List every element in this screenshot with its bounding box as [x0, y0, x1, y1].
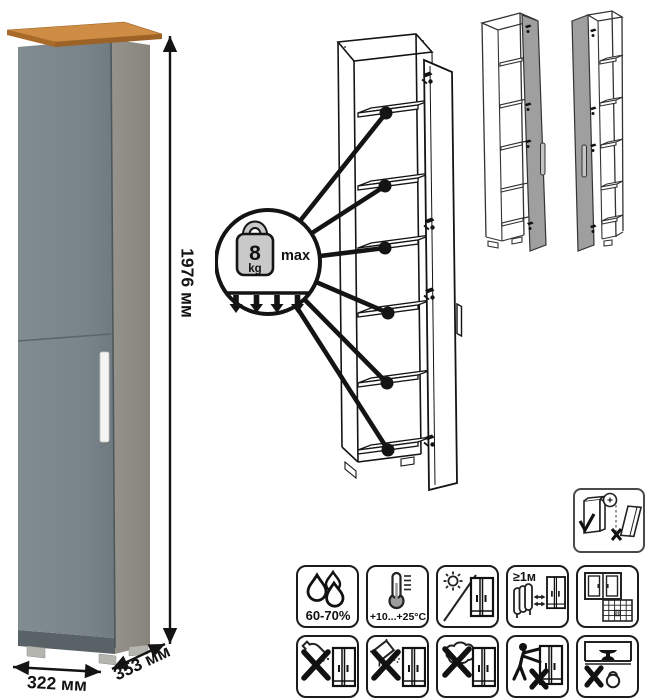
anvil-icon: [599, 650, 617, 660]
heat-distance-icon: ≥1м: [510, 569, 566, 625]
wall-anchor-drawing: [576, 491, 642, 550]
load-value: 8: [249, 242, 261, 265]
calendar-day-label: 21: [614, 610, 620, 615]
humidity-icon: 60-70%: [300, 569, 356, 625]
load-qualifier: max: [281, 248, 310, 264]
care-icon-temperature: +10...+25°C: [366, 565, 429, 628]
variant-diagrams: [476, 5, 648, 253]
no-wet-cleaning-icon: [440, 639, 496, 695]
radiator-icon: [514, 584, 532, 618]
variant-b-door: [572, 15, 594, 251]
variant-b-shelves: [600, 55, 623, 224]
wardrobe-glyph: [540, 646, 562, 684]
height-dimension-label: 1976 мм: [177, 248, 198, 318]
open-cabinet-drawing: [338, 34, 462, 490]
temperature-icon: +10...+25°C: [370, 569, 426, 625]
wardrobe-glyph: [471, 578, 493, 616]
wardrobe-glyph: [547, 577, 565, 608]
variant-a-handle: [541, 143, 546, 175]
max-load-callout: 8 kg max: [216, 210, 320, 314]
ventilation-icon: 21: [580, 569, 636, 625]
no-abrasive-powder-icon: [370, 639, 426, 695]
spacing-arrows: [533, 594, 545, 606]
door-left-variant-diagram: [572, 11, 623, 251]
no-heavy-items-icon: [580, 639, 636, 695]
tilting-cabinet-drawing: [621, 504, 641, 538]
furniture-instruction-sheet: 1976 мм 322 мм 353 мм: [0, 0, 648, 700]
humidity-label: 60-70%: [305, 608, 350, 623]
open-door-drawing: [424, 60, 462, 490]
wardrobe-glyph: [403, 648, 425, 686]
distance-label: ≥1м: [513, 570, 536, 584]
sun-icon: [443, 571, 462, 590]
window-icon: [585, 573, 621, 599]
care-icon-no-liquids: [296, 635, 359, 698]
care-icon-no-direct-sunlight: [436, 565, 499, 628]
care-icon-humidity: 60-70%: [296, 565, 359, 628]
care-icon-no-dragging: [506, 635, 569, 698]
calendar-icon: 21: [603, 600, 632, 621]
shelf-pointer-dots: [379, 107, 395, 457]
no-dragging-icon: [510, 639, 566, 695]
care-icon-no-heavy-items: [576, 635, 639, 698]
load-unit: kg: [248, 263, 261, 275]
width-dimension-label: 322 мм: [27, 672, 88, 696]
care-icon-ventilation: 21: [576, 565, 639, 628]
shelf-load-diagram: 8 kg max: [215, 10, 480, 515]
wardrobe-glyph: [333, 648, 355, 686]
variant-a-door: [522, 15, 546, 251]
no-direct-sunlight-icon: [440, 569, 496, 625]
temperature-label: +10...+25°C: [370, 611, 426, 623]
wardrobe-glyph: [473, 648, 495, 686]
care-icon-grid: 60-70% +10...+25°C: [296, 565, 639, 698]
care-icon-no-abrasive-powder: [366, 635, 429, 698]
variant-b-handle: [582, 145, 587, 177]
care-icon-heat-distance: ≥1м: [506, 565, 569, 628]
wall-anchor-warning-icon: [573, 488, 645, 553]
no-liquids-icon: [300, 639, 356, 695]
door-right-variant-diagram: [482, 13, 546, 251]
width-dimension-arrow: [13, 667, 101, 672]
x-mark-icon: [587, 668, 601, 685]
care-icon-no-wet-cleaning: [436, 635, 499, 698]
